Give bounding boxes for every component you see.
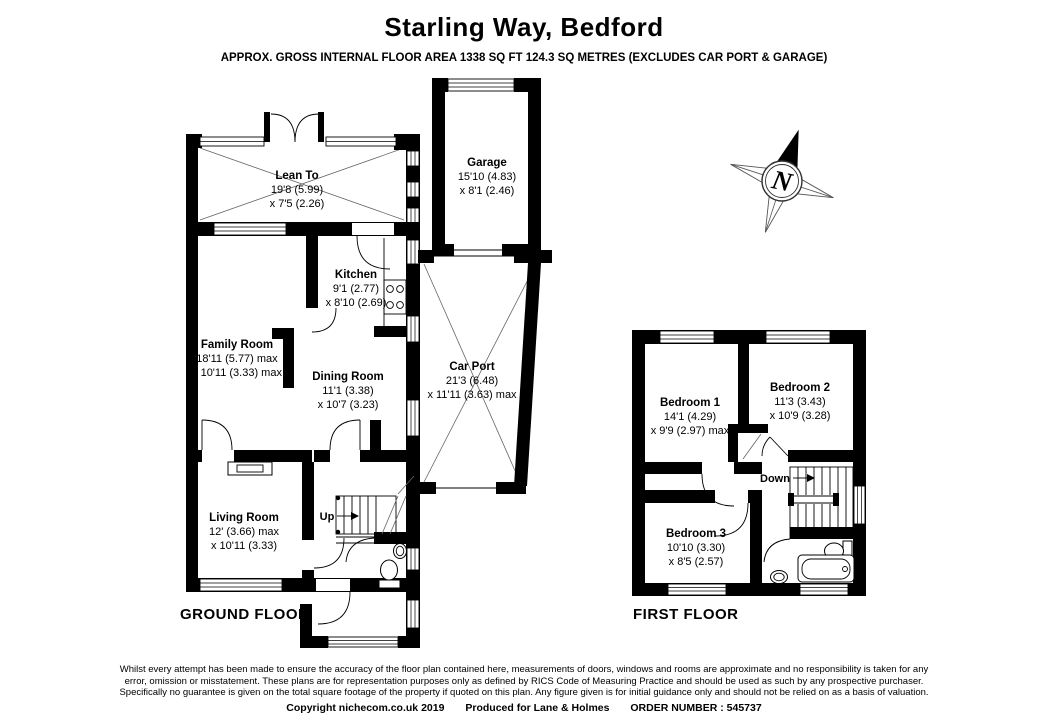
room-dim: x 10'9 (3.28) <box>770 410 831 422</box>
first-floor-label: FIRST FLOOR <box>633 606 739 623</box>
down-label: Down <box>760 473 790 485</box>
room-label-bedroom-3: Bedroom 3 <box>666 528 726 540</box>
room-dim: x 10'11 (3.33) <box>211 540 277 552</box>
room-dim: 10'10 (3.30) <box>667 542 725 554</box>
floor-plan-canvas: Lean To 19'8 (5.99) x 7'5 (2.26) Garage … <box>0 0 1048 660</box>
disclaimer-line: Specifically no guarantee is given on th… <box>0 687 1048 699</box>
room-label-garage: Garage <box>467 157 507 169</box>
room-label-kitchen: Kitchen <box>335 269 377 281</box>
room-label-bedroom-1: Bedroom 1 <box>660 397 721 409</box>
room-label-bedroom-2: Bedroom 2 <box>770 382 830 394</box>
room-dim: x 7'5 (2.26) <box>270 198 325 210</box>
up-label: Up <box>320 511 335 523</box>
room-dim: x 9'9 (2.97) max <box>651 425 730 437</box>
room-dim: x 10'7 (3.23) <box>318 399 379 411</box>
room-dim: 18'11 (5.77) max <box>196 353 278 365</box>
produced-for-text: Produced for Lane & Holmes <box>465 702 609 714</box>
floor-plan-page: Starling Way, Bedford APPROX. GROSS INTE… <box>0 0 1048 720</box>
room-label-lean-to: Lean To <box>275 170 318 182</box>
room-label-dining-room: Dining Room <box>312 371 384 383</box>
room-dim: 21'3 (6.48) <box>446 375 498 387</box>
room-label-family-room: Family Room <box>201 339 273 351</box>
toilet-icon <box>381 560 398 580</box>
room-dim: x 8'5 (2.57) <box>669 556 724 568</box>
bathroom-fixtures <box>771 541 855 584</box>
order-number-text: ORDER NUMBER : 545737 <box>630 702 761 714</box>
kitchen-counter-hob <box>384 238 406 326</box>
room-dim: 19'8 (5.99) <box>271 184 323 196</box>
room-dim: x 11'11 (3.63) max <box>427 389 517 401</box>
room-dim: 14'1 (4.29) <box>664 411 716 423</box>
basin-icon <box>771 571 788 584</box>
room-dim: x 8'1 (2.46) <box>460 185 515 197</box>
footer-copyright-row: Copyright nichecom.co.uk 2019 Produced f… <box>0 702 1048 714</box>
ground-floor-plan: Lean To 19'8 (5.99) x 7'5 (2.26) Garage … <box>186 78 552 648</box>
room-dim: x 10'11 (3.33) max <box>192 367 282 379</box>
ground-floor-label: GROUND FLOOR <box>180 606 309 623</box>
french-doors <box>264 112 324 142</box>
room-dim: 11'3 (3.43) <box>774 396 825 408</box>
copyright-text: Copyright nichecom.co.uk 2019 <box>286 702 444 714</box>
first-floor-plan: Bedroom 1 14'1 (4.29) x 9'9 (2.97) max B… <box>632 330 866 596</box>
disclaimer-line: Whilst every attempt has been made to en… <box>0 664 1048 676</box>
compass-rose: N <box>714 113 850 249</box>
room-dim: 15'10 (4.83) <box>458 171 516 183</box>
fireplace <box>228 462 272 475</box>
room-dim: x 8'10 (2.69) <box>326 297 387 309</box>
ground-floor-labels: Lean To 19'8 (5.99) x 7'5 (2.26) Garage … <box>192 157 517 552</box>
disclaimer-line: error, omission or misstatement. These p… <box>0 676 1048 688</box>
room-label-living-room: Living Room <box>209 512 279 524</box>
footer-disclaimer: Whilst every attempt has been made to en… <box>0 664 1048 699</box>
room-label-car-port: Car Port <box>449 361 495 373</box>
room-dim: 9'1 (2.77) <box>333 283 379 295</box>
up-arrow-icon <box>351 512 359 520</box>
room-dim: 11'1 (3.38) <box>322 385 373 397</box>
room-dim: 12' (3.66) max <box>209 526 279 538</box>
